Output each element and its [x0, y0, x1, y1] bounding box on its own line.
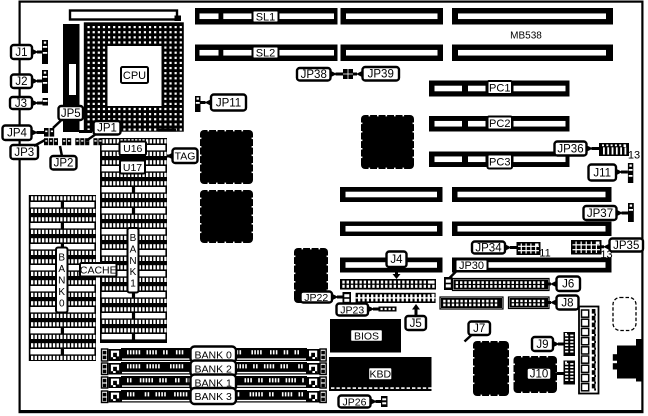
svg-text:SL1: SL1	[256, 11, 276, 23]
svg-text:N: N	[129, 256, 136, 267]
svg-text:JP30: JP30	[459, 260, 484, 272]
svg-text:JP23: JP23	[340, 304, 364, 316]
svg-text:PC3: PC3	[489, 156, 510, 168]
svg-text:JP36: JP36	[557, 143, 583, 155]
svg-text:J7: J7	[473, 323, 485, 335]
svg-text:JP3: JP3	[14, 147, 34, 159]
svg-text:CACHE: CACHE	[80, 265, 117, 277]
svg-text:JP39: JP39	[368, 69, 394, 81]
svg-text:J3: J3	[15, 98, 27, 110]
svg-text:1: 1	[130, 278, 136, 289]
svg-text:B: B	[58, 253, 65, 264]
svg-text:J6: J6	[562, 279, 574, 291]
svg-text:J1: J1	[15, 47, 27, 59]
svg-text:N: N	[58, 276, 65, 287]
svg-text:13: 13	[628, 150, 640, 162]
svg-text:11: 11	[539, 248, 550, 260]
svg-text:J10: J10	[530, 369, 549, 381]
svg-text:JP38: JP38	[301, 69, 327, 81]
svg-text:A: A	[58, 264, 65, 275]
svg-text:CPU: CPU	[123, 70, 146, 82]
svg-text:U16: U16	[123, 143, 142, 155]
svg-text:SL2: SL2	[256, 47, 276, 59]
svg-text:BANK 3: BANK 3	[195, 391, 233, 403]
svg-text:JP37: JP37	[587, 208, 613, 220]
svg-text:BIOS: BIOS	[354, 330, 379, 342]
svg-text:A: A	[130, 244, 137, 255]
svg-text:JP1: JP1	[97, 123, 117, 135]
svg-text:JP2: JP2	[54, 158, 74, 170]
svg-text:JP22: JP22	[304, 292, 328, 304]
svg-text:J9: J9	[536, 339, 548, 351]
svg-text:TAG: TAG	[175, 151, 196, 163]
svg-text:JP26: JP26	[343, 396, 367, 408]
svg-text:J8: J8	[561, 297, 573, 309]
svg-text:PC1: PC1	[489, 82, 510, 94]
svg-text:JP4: JP4	[7, 128, 27, 140]
svg-text:J2: J2	[15, 76, 27, 88]
svg-text:J4: J4	[390, 254, 403, 266]
svg-text:J11: J11	[593, 167, 611, 179]
svg-text:KBD: KBD	[369, 369, 391, 381]
svg-text:MB538: MB538	[510, 31, 542, 42]
svg-text:JP11: JP11	[216, 97, 241, 109]
svg-text:U17: U17	[123, 162, 142, 174]
svg-text:JP35: JP35	[613, 240, 639, 252]
svg-text:JP5: JP5	[61, 108, 81, 120]
svg-text:PC2: PC2	[489, 118, 510, 130]
svg-text:K: K	[58, 287, 65, 298]
svg-text:B: B	[130, 233, 137, 244]
svg-text:0: 0	[59, 298, 65, 309]
svg-text:JP34: JP34	[475, 242, 502, 254]
svg-text:K: K	[130, 267, 137, 278]
svg-text:J5: J5	[410, 318, 422, 330]
